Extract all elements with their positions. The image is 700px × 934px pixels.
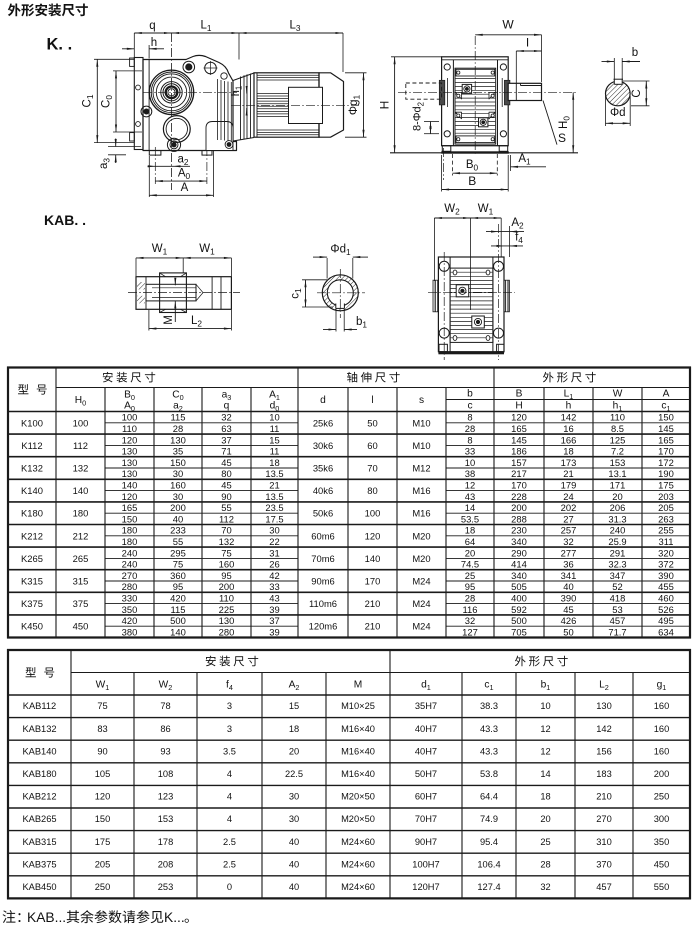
svg-text:15: 15 — [289, 701, 299, 711]
svg-text:500: 500 — [170, 615, 186, 626]
svg-text:170: 170 — [658, 446, 674, 457]
svg-text:240: 240 — [122, 547, 138, 558]
svg-text:H: H — [378, 101, 392, 110]
svg-text:270: 270 — [122, 570, 138, 581]
svg-text:80: 80 — [367, 485, 377, 496]
svg-text:24: 24 — [563, 491, 573, 502]
svg-text:40: 40 — [289, 859, 299, 869]
svg-text:150: 150 — [170, 457, 186, 468]
svg-text:110: 110 — [610, 412, 625, 423]
svg-text:212: 212 — [73, 530, 89, 541]
svg-text:I: I — [526, 36, 529, 50]
svg-text:25k6: 25k6 — [313, 417, 333, 428]
svg-text:M16×40: M16×40 — [341, 769, 375, 779]
svg-text:45: 45 — [221, 479, 231, 490]
svg-text:634: 634 — [658, 626, 674, 637]
svg-text:127.4: 127.4 — [477, 882, 500, 892]
svg-text:20: 20 — [465, 547, 475, 558]
svg-text:M16×40: M16×40 — [341, 724, 375, 734]
svg-text:30: 30 — [173, 491, 183, 502]
svg-text:30: 30 — [289, 814, 299, 824]
svg-text:100: 100 — [122, 412, 138, 423]
svg-text:32: 32 — [540, 882, 550, 892]
svg-text:11: 11 — [270, 423, 280, 434]
svg-text:90H7: 90H7 — [415, 837, 437, 847]
svg-text:130: 130 — [219, 615, 235, 626]
svg-text:43.3: 43.3 — [480, 746, 498, 756]
svg-text:3: 3 — [227, 724, 232, 734]
svg-text:120: 120 — [122, 434, 138, 445]
svg-text:KAB140: KAB140 — [22, 746, 56, 756]
svg-text:38: 38 — [465, 468, 475, 479]
svg-text:160: 160 — [654, 724, 670, 734]
svg-text:31.3: 31.3 — [608, 513, 626, 524]
svg-text:175: 175 — [658, 479, 674, 490]
svg-text:153: 153 — [158, 814, 174, 824]
svg-text:74.5: 74.5 — [461, 559, 479, 570]
svg-text:83: 83 — [97, 724, 107, 734]
svg-text:280: 280 — [219, 626, 235, 637]
svg-text:90: 90 — [97, 746, 107, 756]
svg-text:460: 460 — [658, 592, 674, 603]
svg-text:71.7: 71.7 — [608, 626, 626, 637]
svg-text:291: 291 — [610, 547, 626, 558]
svg-text:93: 93 — [160, 746, 170, 756]
svg-text:160: 160 — [654, 701, 670, 711]
svg-text:63: 63 — [221, 423, 231, 434]
svg-text:22: 22 — [269, 536, 279, 547]
svg-text:25.9: 25.9 — [608, 536, 626, 547]
svg-text:KAB...: KAB... — [27, 910, 66, 925]
svg-text:183: 183 — [596, 769, 612, 779]
svg-text:210: 210 — [365, 621, 381, 632]
svg-text:250: 250 — [95, 882, 111, 892]
svg-text:70: 70 — [221, 525, 231, 536]
svg-text:180: 180 — [122, 525, 138, 536]
svg-text:120: 120 — [365, 530, 381, 541]
svg-text:130: 130 — [122, 446, 138, 457]
svg-text:172: 172 — [658, 457, 674, 468]
svg-text:157: 157 — [511, 457, 527, 468]
svg-text:130: 130 — [122, 457, 138, 468]
svg-text:240: 240 — [610, 525, 626, 536]
svg-text:173: 173 — [561, 457, 577, 468]
svg-text:K140: K140 — [21, 485, 43, 496]
svg-text:75: 75 — [97, 701, 107, 711]
svg-text:12: 12 — [540, 724, 550, 734]
svg-text:18: 18 — [289, 724, 299, 734]
svg-text:37: 37 — [269, 615, 279, 626]
svg-text:120H7: 120H7 — [412, 882, 439, 892]
svg-text:450: 450 — [73, 621, 89, 632]
svg-text:W: W — [502, 18, 514, 32]
svg-text:40: 40 — [563, 581, 573, 592]
svg-text:330: 330 — [122, 592, 138, 603]
svg-text:K315: K315 — [21, 576, 43, 587]
svg-text:60m6: 60m6 — [311, 530, 334, 541]
svg-text:25: 25 — [540, 837, 550, 847]
svg-text:2.5: 2.5 — [223, 837, 236, 847]
svg-text:12: 12 — [540, 746, 550, 756]
svg-text:105: 105 — [95, 769, 111, 779]
svg-text:340: 340 — [511, 570, 527, 581]
svg-text:132: 132 — [219, 536, 235, 547]
svg-text:505: 505 — [511, 581, 527, 592]
svg-text:A: A — [663, 388, 670, 399]
svg-text:130: 130 — [122, 468, 138, 479]
svg-text:14: 14 — [540, 769, 550, 779]
svg-text:M24×60: M24×60 — [341, 837, 375, 847]
svg-text:h: h — [566, 400, 572, 411]
svg-text:705: 705 — [511, 626, 527, 637]
svg-text:H: H — [515, 400, 522, 411]
svg-text:42: 42 — [269, 570, 279, 581]
svg-text:210: 210 — [596, 792, 612, 802]
svg-text:35H7: 35H7 — [415, 701, 437, 711]
svg-text:142: 142 — [561, 412, 577, 423]
svg-text:347: 347 — [610, 570, 626, 581]
svg-text:140: 140 — [170, 626, 186, 637]
svg-text:75: 75 — [221, 547, 231, 558]
svg-text:500: 500 — [511, 615, 527, 626]
svg-text:202: 202 — [561, 502, 577, 513]
svg-text:50: 50 — [563, 626, 573, 637]
svg-text:8: 8 — [467, 412, 472, 423]
svg-text:M24×60: M24×60 — [341, 859, 375, 869]
svg-text:206: 206 — [610, 502, 626, 513]
svg-text:110: 110 — [219, 592, 234, 603]
svg-text:22.5: 22.5 — [285, 769, 303, 779]
svg-text:166: 166 — [561, 434, 577, 445]
svg-text:KAB265: KAB265 — [22, 814, 56, 824]
svg-text:28: 28 — [465, 423, 475, 434]
svg-text:M20×50: M20×50 — [341, 814, 375, 824]
svg-text:106.4: 106.4 — [477, 859, 500, 869]
svg-text:150: 150 — [658, 412, 674, 423]
svg-text:277: 277 — [561, 547, 577, 558]
svg-text:38.3: 38.3 — [480, 701, 498, 711]
svg-text:495: 495 — [658, 615, 674, 626]
svg-text:21: 21 — [269, 479, 279, 490]
svg-text:375: 375 — [73, 598, 89, 609]
svg-text:17.5: 17.5 — [265, 513, 283, 524]
svg-text:23.5: 23.5 — [265, 502, 283, 513]
svg-text:A: A — [181, 182, 189, 194]
svg-text:95: 95 — [221, 570, 231, 581]
svg-text:C: C — [631, 89, 643, 97]
svg-text:100: 100 — [73, 417, 89, 428]
svg-text:390: 390 — [658, 570, 674, 581]
svg-text:225: 225 — [219, 604, 235, 615]
svg-text:86: 86 — [160, 724, 170, 734]
svg-text:179: 179 — [561, 479, 577, 490]
svg-text:S: S — [558, 131, 566, 145]
svg-text:253: 253 — [158, 882, 174, 892]
svg-text:KAB132: KAB132 — [22, 724, 56, 734]
svg-text:203: 203 — [658, 491, 674, 502]
svg-text:50: 50 — [367, 417, 377, 428]
svg-text:140: 140 — [365, 553, 381, 564]
svg-text:40: 40 — [289, 882, 299, 892]
svg-text:Φd: Φd — [610, 107, 626, 119]
svg-text:43.3: 43.3 — [480, 724, 498, 734]
svg-text:186: 186 — [511, 446, 527, 457]
svg-text:KAB180: KAB180 — [22, 769, 56, 779]
svg-text:90m6: 90m6 — [311, 576, 334, 587]
svg-text:25: 25 — [465, 570, 475, 581]
svg-text:50H7: 50H7 — [415, 769, 437, 779]
svg-text:55: 55 — [221, 502, 231, 513]
svg-text:32: 32 — [563, 536, 573, 547]
svg-text:40k6: 40k6 — [313, 485, 333, 496]
svg-text:290: 290 — [511, 547, 527, 558]
svg-text:K265: K265 — [21, 553, 43, 564]
svg-text:26: 26 — [269, 559, 279, 570]
svg-text:145: 145 — [658, 423, 674, 434]
svg-text:341: 341 — [561, 570, 577, 581]
svg-text:M10: M10 — [412, 417, 430, 428]
svg-text:414: 414 — [511, 559, 527, 570]
svg-text:592: 592 — [511, 604, 527, 615]
svg-text:150: 150 — [95, 814, 111, 824]
svg-text:120m6: 120m6 — [309, 621, 338, 632]
svg-text:18: 18 — [563, 446, 573, 457]
svg-text:40H7: 40H7 — [415, 746, 437, 756]
svg-text:340: 340 — [511, 536, 527, 547]
svg-text:4: 4 — [227, 814, 232, 824]
svg-text:M24: M24 — [412, 576, 430, 587]
svg-text:d: d — [320, 395, 326, 406]
svg-text:13.1: 13.1 — [608, 468, 626, 479]
svg-text:KAB315: KAB315 — [22, 837, 56, 847]
svg-text:30k6: 30k6 — [313, 440, 333, 451]
svg-text:123: 123 — [158, 792, 174, 802]
svg-text:q: q — [224, 400, 230, 411]
svg-text:125: 125 — [610, 434, 626, 445]
svg-text:210: 210 — [365, 598, 381, 609]
svg-text:13.5: 13.5 — [265, 491, 283, 502]
svg-text:3.5: 3.5 — [223, 746, 236, 756]
svg-text:M: M — [163, 315, 175, 325]
svg-text:27: 27 — [563, 513, 573, 524]
svg-text:43: 43 — [269, 592, 279, 603]
svg-text:257: 257 — [561, 525, 577, 536]
svg-text:21: 21 — [563, 468, 573, 479]
svg-text:311: 311 — [659, 536, 674, 547]
svg-text:50k6: 50k6 — [313, 508, 333, 519]
svg-text:120: 120 — [122, 491, 138, 502]
svg-text:263: 263 — [658, 513, 674, 524]
svg-text:8: 8 — [467, 434, 472, 445]
svg-text:4: 4 — [227, 792, 232, 802]
svg-text:M24: M24 — [412, 621, 430, 632]
svg-text:230: 230 — [511, 525, 527, 536]
svg-text:7.2: 7.2 — [611, 446, 624, 457]
svg-text:170: 170 — [365, 576, 381, 587]
svg-text:K...: K... — [164, 910, 185, 925]
svg-text:30: 30 — [269, 525, 279, 536]
svg-text:78: 78 — [160, 701, 170, 711]
svg-text:350: 350 — [122, 604, 138, 615]
svg-text:240: 240 — [122, 559, 138, 570]
svg-text:KAB450: KAB450 — [22, 882, 56, 892]
svg-text:s: s — [419, 395, 424, 406]
svg-text:8.5: 8.5 — [611, 423, 624, 434]
svg-text:208: 208 — [158, 859, 174, 869]
svg-text:K212: K212 — [21, 530, 43, 541]
svg-text:K100: K100 — [21, 417, 43, 428]
svg-text:132: 132 — [73, 463, 89, 474]
svg-text:K112: K112 — [21, 440, 42, 451]
svg-text:31: 31 — [269, 547, 279, 558]
svg-text:156: 156 — [596, 746, 612, 756]
svg-text:32.3: 32.3 — [608, 559, 626, 570]
svg-text:200: 200 — [654, 769, 670, 779]
svg-text:M10: M10 — [412, 440, 430, 451]
svg-text:100: 100 — [365, 508, 381, 519]
svg-text:39: 39 — [269, 604, 279, 615]
svg-text:350: 350 — [654, 837, 670, 847]
svg-text:450: 450 — [654, 859, 670, 869]
svg-text:95: 95 — [465, 581, 475, 592]
svg-text:200: 200 — [219, 581, 235, 592]
svg-text:250: 250 — [654, 792, 670, 802]
svg-text:10: 10 — [540, 701, 550, 711]
svg-text:130: 130 — [170, 434, 186, 445]
svg-text:64.4: 64.4 — [480, 792, 498, 802]
svg-text:40H7: 40H7 — [415, 724, 437, 734]
svg-text:127: 127 — [462, 626, 478, 637]
svg-text:13.5: 13.5 — [265, 468, 283, 479]
svg-text:205: 205 — [95, 859, 111, 869]
svg-text:M20: M20 — [412, 553, 430, 564]
svg-text:18: 18 — [465, 525, 475, 536]
svg-text:75: 75 — [173, 559, 183, 570]
svg-text:KAB212: KAB212 — [22, 792, 56, 802]
svg-text:71: 71 — [221, 446, 231, 457]
svg-text:28: 28 — [540, 859, 550, 869]
svg-text:2.5: 2.5 — [223, 859, 236, 869]
svg-text:39: 39 — [269, 626, 279, 637]
svg-text:140: 140 — [122, 479, 138, 490]
svg-text:10: 10 — [465, 457, 475, 468]
svg-text:426: 426 — [561, 615, 577, 626]
svg-text:M16: M16 — [412, 508, 430, 519]
svg-text:165: 165 — [658, 434, 674, 445]
svg-text:M10×25: M10×25 — [341, 701, 375, 711]
svg-text:K. .: K. . — [47, 36, 73, 54]
svg-text:30: 30 — [289, 792, 299, 802]
svg-text:526: 526 — [658, 604, 674, 615]
svg-text:380: 380 — [122, 626, 138, 637]
svg-text:295: 295 — [170, 547, 186, 558]
svg-text:45: 45 — [221, 457, 231, 468]
svg-text:B: B — [516, 388, 523, 399]
svg-text:110: 110 — [122, 423, 137, 434]
svg-text:130: 130 — [596, 701, 612, 711]
svg-text:165: 165 — [511, 423, 527, 434]
svg-text:K375: K375 — [21, 598, 43, 609]
svg-text:M12: M12 — [412, 463, 430, 474]
svg-text:36: 36 — [563, 559, 573, 570]
svg-text:95.4: 95.4 — [480, 837, 498, 847]
svg-text:288: 288 — [511, 513, 527, 524]
svg-text:142: 142 — [596, 724, 612, 734]
svg-text:KAB375: KAB375 — [22, 859, 56, 869]
svg-text:28: 28 — [465, 592, 475, 603]
svg-text:400: 400 — [511, 592, 527, 603]
svg-text:550: 550 — [654, 882, 670, 892]
svg-text:265: 265 — [73, 553, 89, 564]
svg-text:KAB. .: KAB. . — [44, 212, 86, 228]
svg-text:120: 120 — [95, 792, 111, 802]
svg-text:180: 180 — [122, 536, 138, 547]
svg-text:217: 217 — [511, 468, 527, 479]
svg-text:178: 178 — [158, 837, 174, 847]
svg-text:70: 70 — [367, 463, 377, 474]
svg-text:KAB112: KAB112 — [23, 701, 56, 711]
svg-text:15: 15 — [269, 434, 279, 445]
svg-text:18: 18 — [269, 457, 279, 468]
svg-text:360: 360 — [170, 570, 186, 581]
svg-text:b: b — [632, 47, 638, 59]
svg-text:35k6: 35k6 — [313, 463, 333, 474]
svg-text:M16×40: M16×40 — [341, 746, 375, 756]
svg-text:420: 420 — [170, 592, 186, 603]
svg-text:110m6: 110m6 — [309, 598, 337, 609]
svg-text:K132: K132 — [21, 463, 43, 474]
svg-text:W: W — [613, 388, 623, 399]
svg-text:c: c — [467, 400, 472, 411]
svg-text:115: 115 — [171, 604, 186, 615]
svg-text:30: 30 — [173, 468, 183, 479]
svg-text:160: 160 — [170, 479, 186, 490]
svg-text:11: 11 — [270, 446, 280, 457]
svg-text:108: 108 — [158, 769, 174, 779]
svg-text:228: 228 — [511, 491, 527, 502]
svg-text:90: 90 — [221, 491, 231, 502]
svg-text:145: 145 — [511, 434, 527, 445]
svg-text:20: 20 — [612, 491, 622, 502]
svg-text:457: 457 — [610, 615, 626, 626]
svg-text:20: 20 — [540, 814, 550, 824]
svg-text:43: 43 — [465, 491, 475, 502]
svg-text:28: 28 — [173, 423, 183, 434]
svg-text:120: 120 — [511, 412, 527, 423]
svg-text:116: 116 — [463, 604, 478, 615]
svg-text:M: M — [354, 679, 363, 690]
svg-text:418: 418 — [610, 592, 626, 603]
svg-text:h: h — [151, 37, 157, 49]
svg-text:l: l — [371, 395, 373, 406]
svg-text:M20×50: M20×50 — [341, 792, 375, 802]
svg-text:153: 153 — [610, 457, 626, 468]
svg-text:165: 165 — [122, 502, 138, 513]
svg-text:16: 16 — [563, 423, 573, 434]
svg-text:52: 52 — [612, 581, 622, 592]
svg-text:171: 171 — [610, 479, 626, 490]
svg-text:K180: K180 — [21, 508, 43, 519]
svg-text:95: 95 — [173, 581, 183, 592]
svg-text:B: B — [468, 174, 476, 188]
svg-text:170: 170 — [511, 479, 527, 490]
svg-text:233: 233 — [170, 525, 186, 536]
svg-text:200: 200 — [170, 502, 186, 513]
svg-text:4: 4 — [227, 769, 232, 779]
svg-text:457: 457 — [596, 882, 612, 892]
svg-text:K450: K450 — [21, 621, 43, 632]
svg-text:70H7: 70H7 — [415, 814, 437, 824]
